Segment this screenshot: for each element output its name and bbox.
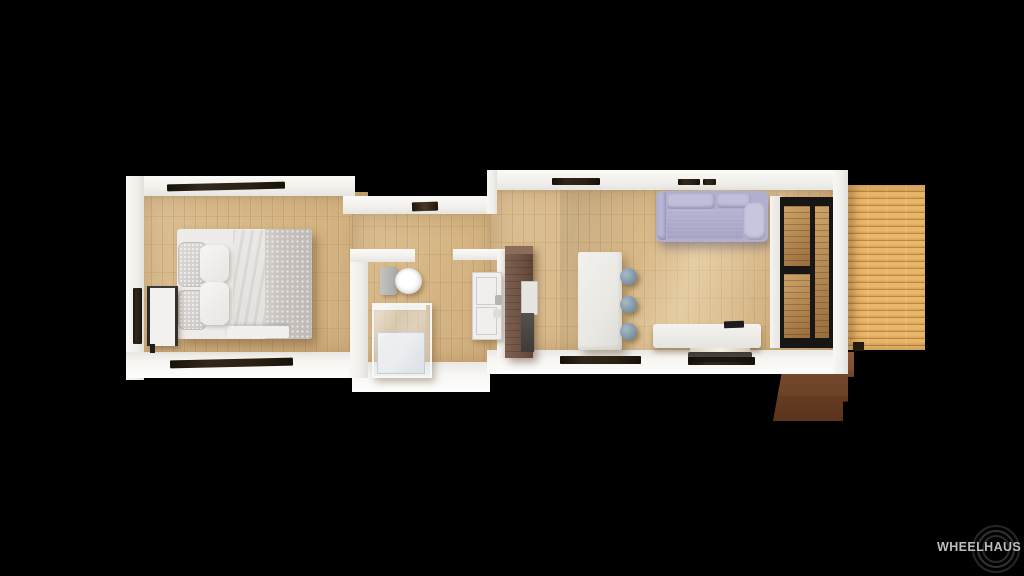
floorplan-render-scene: WHEELHAUS	[0, 0, 1024, 576]
vanity-faucet	[495, 295, 502, 305]
vanity-sink	[493, 309, 501, 318]
entry-door-threshold	[412, 202, 438, 212]
shower-glass-sheen	[374, 305, 426, 372]
living-top-window-b	[703, 179, 716, 185]
bar-stool-1	[620, 268, 637, 285]
bathroom-west-wall	[350, 252, 368, 378]
wood-deck	[848, 185, 925, 350]
vanity-door-panel-top	[476, 277, 497, 305]
cabinet-top-cap	[505, 246, 533, 254]
nightstand-leg	[150, 344, 155, 353]
living-bottom-wall	[487, 350, 848, 374]
sofa	[656, 191, 768, 242]
sofa-back-cushion-left	[667, 194, 715, 209]
coffee-table-glass	[688, 352, 752, 362]
kitchen-island	[578, 252, 622, 350]
entry-return-wall	[487, 170, 497, 214]
bar-stool-2	[620, 296, 637, 313]
glass-pane-right	[815, 206, 829, 338]
glass-sliding-door	[780, 197, 833, 348]
bed-sheet-crumpled	[233, 230, 267, 338]
toilet-bowl	[395, 268, 422, 294]
left-exterior-wall	[126, 176, 144, 380]
bed-duvet-foot-fold	[227, 326, 289, 338]
bedroom-left-window	[133, 288, 142, 344]
tv-screen	[724, 321, 744, 329]
pillow-white-top	[200, 245, 229, 282]
kitchen-bottom-window	[560, 356, 641, 364]
glass-pane-upper-left	[784, 206, 810, 266]
shower-enclosure	[372, 303, 432, 378]
kitchen-cooktop-unit	[521, 313, 534, 352]
living-top-wall	[487, 170, 848, 190]
sofa-left-armrest	[657, 192, 666, 240]
nightstand	[147, 286, 178, 346]
right-exterior-wall	[833, 170, 848, 374]
sofa-seat	[667, 209, 743, 239]
wheelhaus-logo-text: WHEELHAUS	[937, 540, 1021, 554]
bathroom-north-stub-wall	[350, 249, 415, 262]
tv-console	[653, 324, 761, 348]
bed-duvet-patterned	[265, 229, 312, 339]
pillow-white-bottom	[200, 282, 229, 325]
kitchen-sink-unit	[521, 281, 538, 315]
bar-stool-3	[620, 323, 637, 340]
bed	[177, 229, 312, 339]
kitchen-top-window	[552, 178, 600, 185]
sofa-chaise-cushion	[744, 203, 766, 240]
bathroom-vanity	[472, 272, 502, 340]
living-top-window-a	[678, 179, 700, 185]
glass-pane-lower-left	[784, 274, 810, 338]
deck-hatch-detail	[853, 342, 864, 351]
